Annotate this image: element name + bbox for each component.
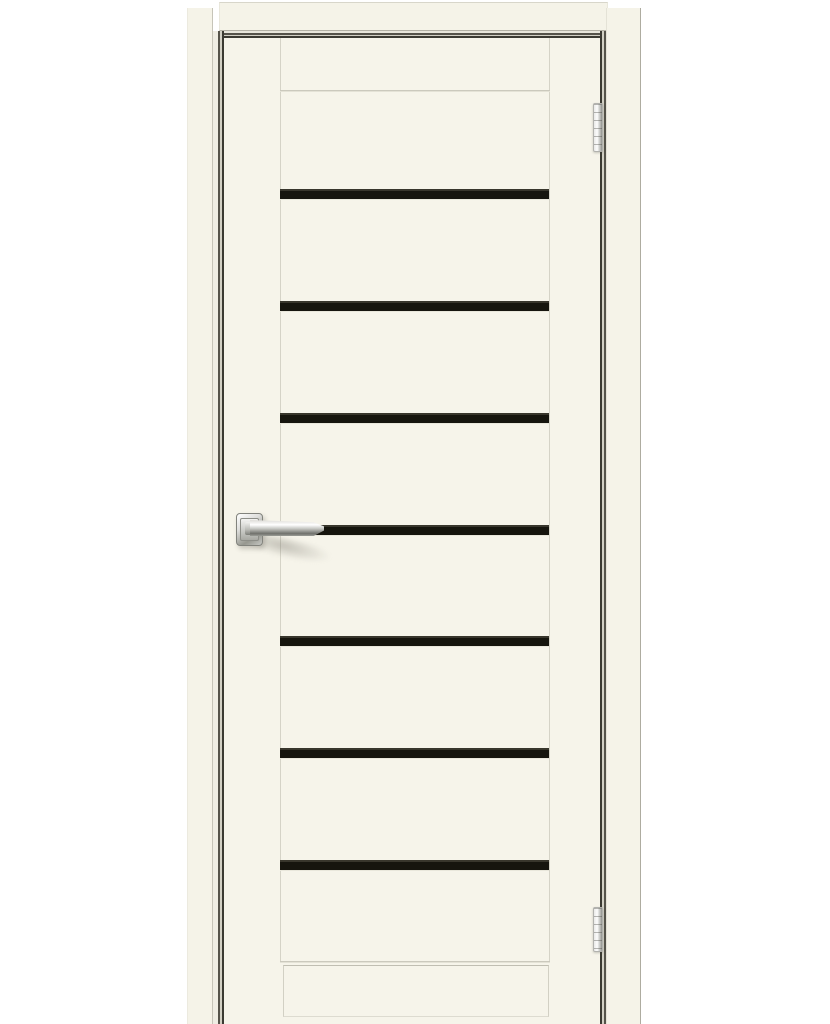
door-casing-left <box>187 8 213 1024</box>
hinge-bottom <box>593 907 603 952</box>
glass-stripe <box>280 748 549 758</box>
handle-lever <box>250 520 324 536</box>
bottom-inset-panel <box>283 965 549 1017</box>
door-casing-right <box>606 8 641 1024</box>
glass-stripe <box>280 301 549 311</box>
glass-stripe <box>280 860 549 870</box>
glass-stripe <box>280 636 549 646</box>
door-casing-head <box>219 2 608 31</box>
glass-stripe <box>280 189 549 199</box>
hinge-top <box>593 103 603 152</box>
door-product-photo <box>0 0 830 1024</box>
door-gap-top <box>218 31 606 38</box>
glass-stripe <box>280 413 549 423</box>
door-gap-right <box>600 31 606 1024</box>
